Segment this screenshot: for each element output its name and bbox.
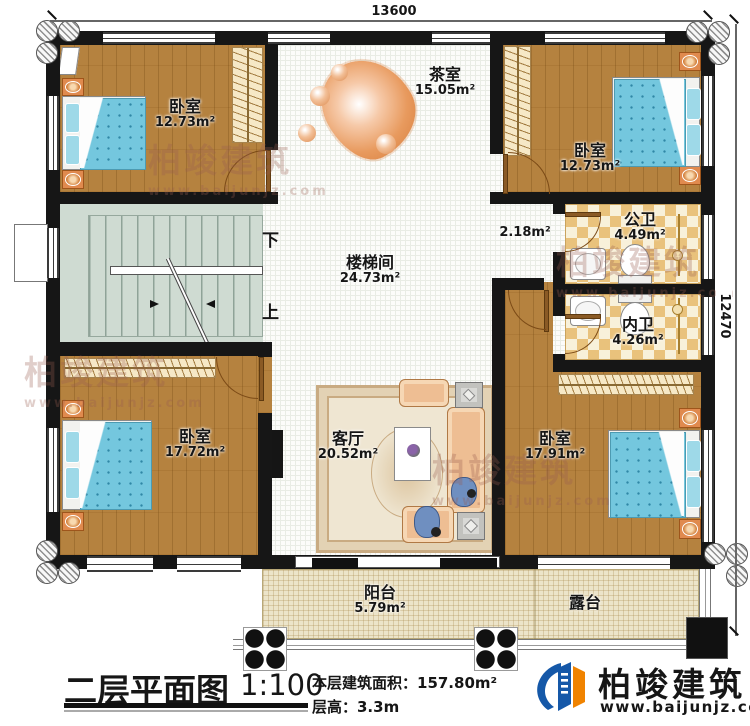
wall: [258, 413, 272, 555]
deck-divider: [534, 569, 536, 639]
floor-area-text: 本层建筑面积：157.80m²: [312, 672, 497, 693]
door-leaf: [266, 150, 271, 192]
dimension-line: [735, 24, 737, 636]
window: [177, 556, 241, 572]
room-label-bedroom-tr: 卧室12.73m²: [545, 142, 635, 174]
corner-column: [726, 543, 748, 565]
wardrobe: [504, 46, 531, 156]
stair-up-label: 上: [262, 298, 279, 323]
room-label-living-room: 客厅20.52m²: [303, 430, 393, 462]
railing: [233, 639, 707, 650]
brand-website: www.baijunjz.com: [600, 698, 750, 716]
tv: [272, 430, 283, 478]
corner-column: [36, 20, 58, 42]
corner-column: [686, 21, 708, 43]
nightstand: [62, 512, 84, 531]
room-label-inner-bath: 内卫4.26m²: [593, 316, 683, 348]
nightstand: [679, 52, 701, 71]
dimension-width: 13600: [366, 4, 422, 20]
floor-height-text: 层高：3.3m: [312, 696, 399, 717]
wall: [46, 192, 278, 204]
stair-handrail: [110, 266, 263, 275]
window: [702, 297, 714, 355]
window: [545, 32, 665, 44]
wall: [553, 204, 565, 214]
tea-room-decor: [331, 64, 348, 81]
bed: [62, 96, 146, 170]
nightstand: [62, 400, 84, 418]
column-post: [474, 627, 518, 671]
window: [47, 228, 59, 278]
window: [87, 556, 153, 572]
dimension-tick: [729, 626, 739, 636]
dimension-tick: [729, 14, 739, 24]
wall: [553, 252, 565, 284]
wall: [553, 360, 701, 372]
corner-column: [58, 20, 80, 42]
wardrobe: [232, 47, 263, 143]
window: [268, 32, 330, 44]
corner-column: [36, 42, 58, 64]
nightstand: [679, 519, 701, 539]
dimension-height: 12470: [716, 286, 732, 346]
toilet: [620, 244, 650, 277]
room-label-bedroom-bl: 卧室17.72m²: [150, 428, 240, 460]
wardrobe: [558, 374, 694, 395]
towel-hook: [672, 250, 683, 261]
wall: [265, 45, 278, 150]
stair-down-label: 下: [262, 226, 279, 251]
wall: [553, 294, 565, 316]
person-figure: [431, 527, 441, 537]
stair-arrow-icon: [206, 300, 215, 308]
wall: [490, 45, 503, 154]
floor-plan-canvas: 13600 12470 柏竣建筑www.baijunjz.com 柏竣建筑www…: [0, 0, 750, 726]
corner-column: [36, 540, 58, 562]
tea-room-decor: [376, 134, 396, 154]
bed: [62, 420, 152, 510]
room-label-balcony: 阳台5.79m²: [335, 584, 425, 616]
corner-column: [708, 21, 730, 43]
dimension-tick: [47, 10, 57, 20]
sink: [570, 248, 606, 280]
corner-column: [36, 562, 58, 584]
tea-room-decor: [310, 86, 330, 106]
title-underline: [64, 710, 308, 712]
person-figure: [467, 489, 476, 498]
room-label-bedroom-br: 卧室17.91m²: [510, 430, 600, 462]
coffee-table: [394, 427, 431, 481]
window: [103, 32, 215, 44]
room-label-tea-room: 茶室15.05m²: [400, 66, 490, 98]
window: [702, 215, 714, 279]
nightstand: [62, 78, 84, 96]
armchair: [399, 379, 449, 407]
room-label-hall-nook: 2.18m²: [488, 226, 562, 240]
bay-window: [14, 224, 48, 282]
dimension-line: [50, 20, 712, 22]
room-label-bedroom-tl: 卧室12.73m²: [140, 98, 230, 130]
towel-hook: [672, 304, 683, 315]
side-table: [457, 512, 485, 540]
bed: [608, 430, 700, 518]
wall: [492, 278, 544, 290]
wall: [46, 342, 272, 356]
room-label-public-bath: 公卫4.49m²: [595, 211, 685, 243]
nightstand: [679, 408, 701, 428]
nightstand: [679, 166, 701, 185]
tea-room-decor: [298, 124, 316, 142]
window: [702, 430, 714, 542]
corner-column: [708, 43, 730, 65]
room-label-stairwell: 楼梯间24.73m²: [322, 254, 418, 286]
wall: [492, 278, 505, 555]
wardrobe: [64, 358, 216, 378]
dimension-tick: [703, 10, 713, 20]
room-label-terrace: 露台: [545, 594, 625, 612]
nightstand: [62, 170, 84, 189]
corner-column: [58, 562, 80, 584]
door-leaf: [259, 357, 264, 401]
title-underline: [64, 703, 308, 708]
column-post: [686, 617, 728, 659]
window: [702, 76, 714, 166]
window: [47, 428, 59, 512]
window: [47, 96, 59, 170]
corner-column: [704, 543, 726, 565]
window: [432, 32, 490, 44]
stair-arrow-icon: [150, 300, 159, 308]
brand-logo-icon: [532, 656, 592, 718]
toilet: [618, 275, 652, 284]
corner-column: [726, 565, 748, 587]
wall: [553, 284, 701, 294]
side-table: [455, 382, 483, 408]
wall: [258, 342, 272, 357]
column-post: [243, 627, 287, 671]
